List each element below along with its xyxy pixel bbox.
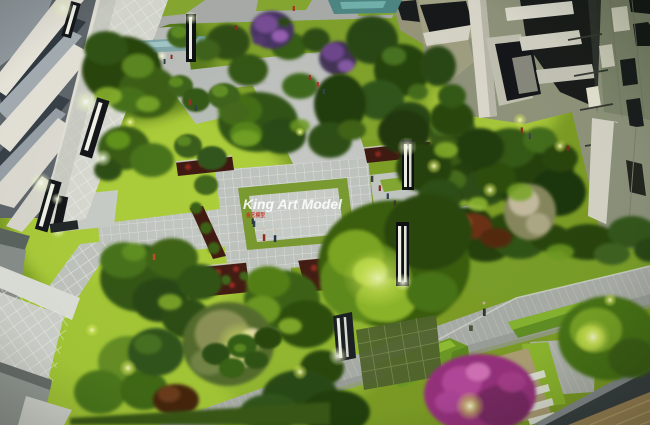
svg-text:King Art Model: King Art Model [243, 196, 343, 212]
svg-text:知名建筑模型制作公司 制作精细技术精湛: 知名建筑模型制作公司 制作精细技术精湛 [269, 211, 325, 219]
svg-text:金艺模型: 金艺模型 [245, 211, 265, 219]
